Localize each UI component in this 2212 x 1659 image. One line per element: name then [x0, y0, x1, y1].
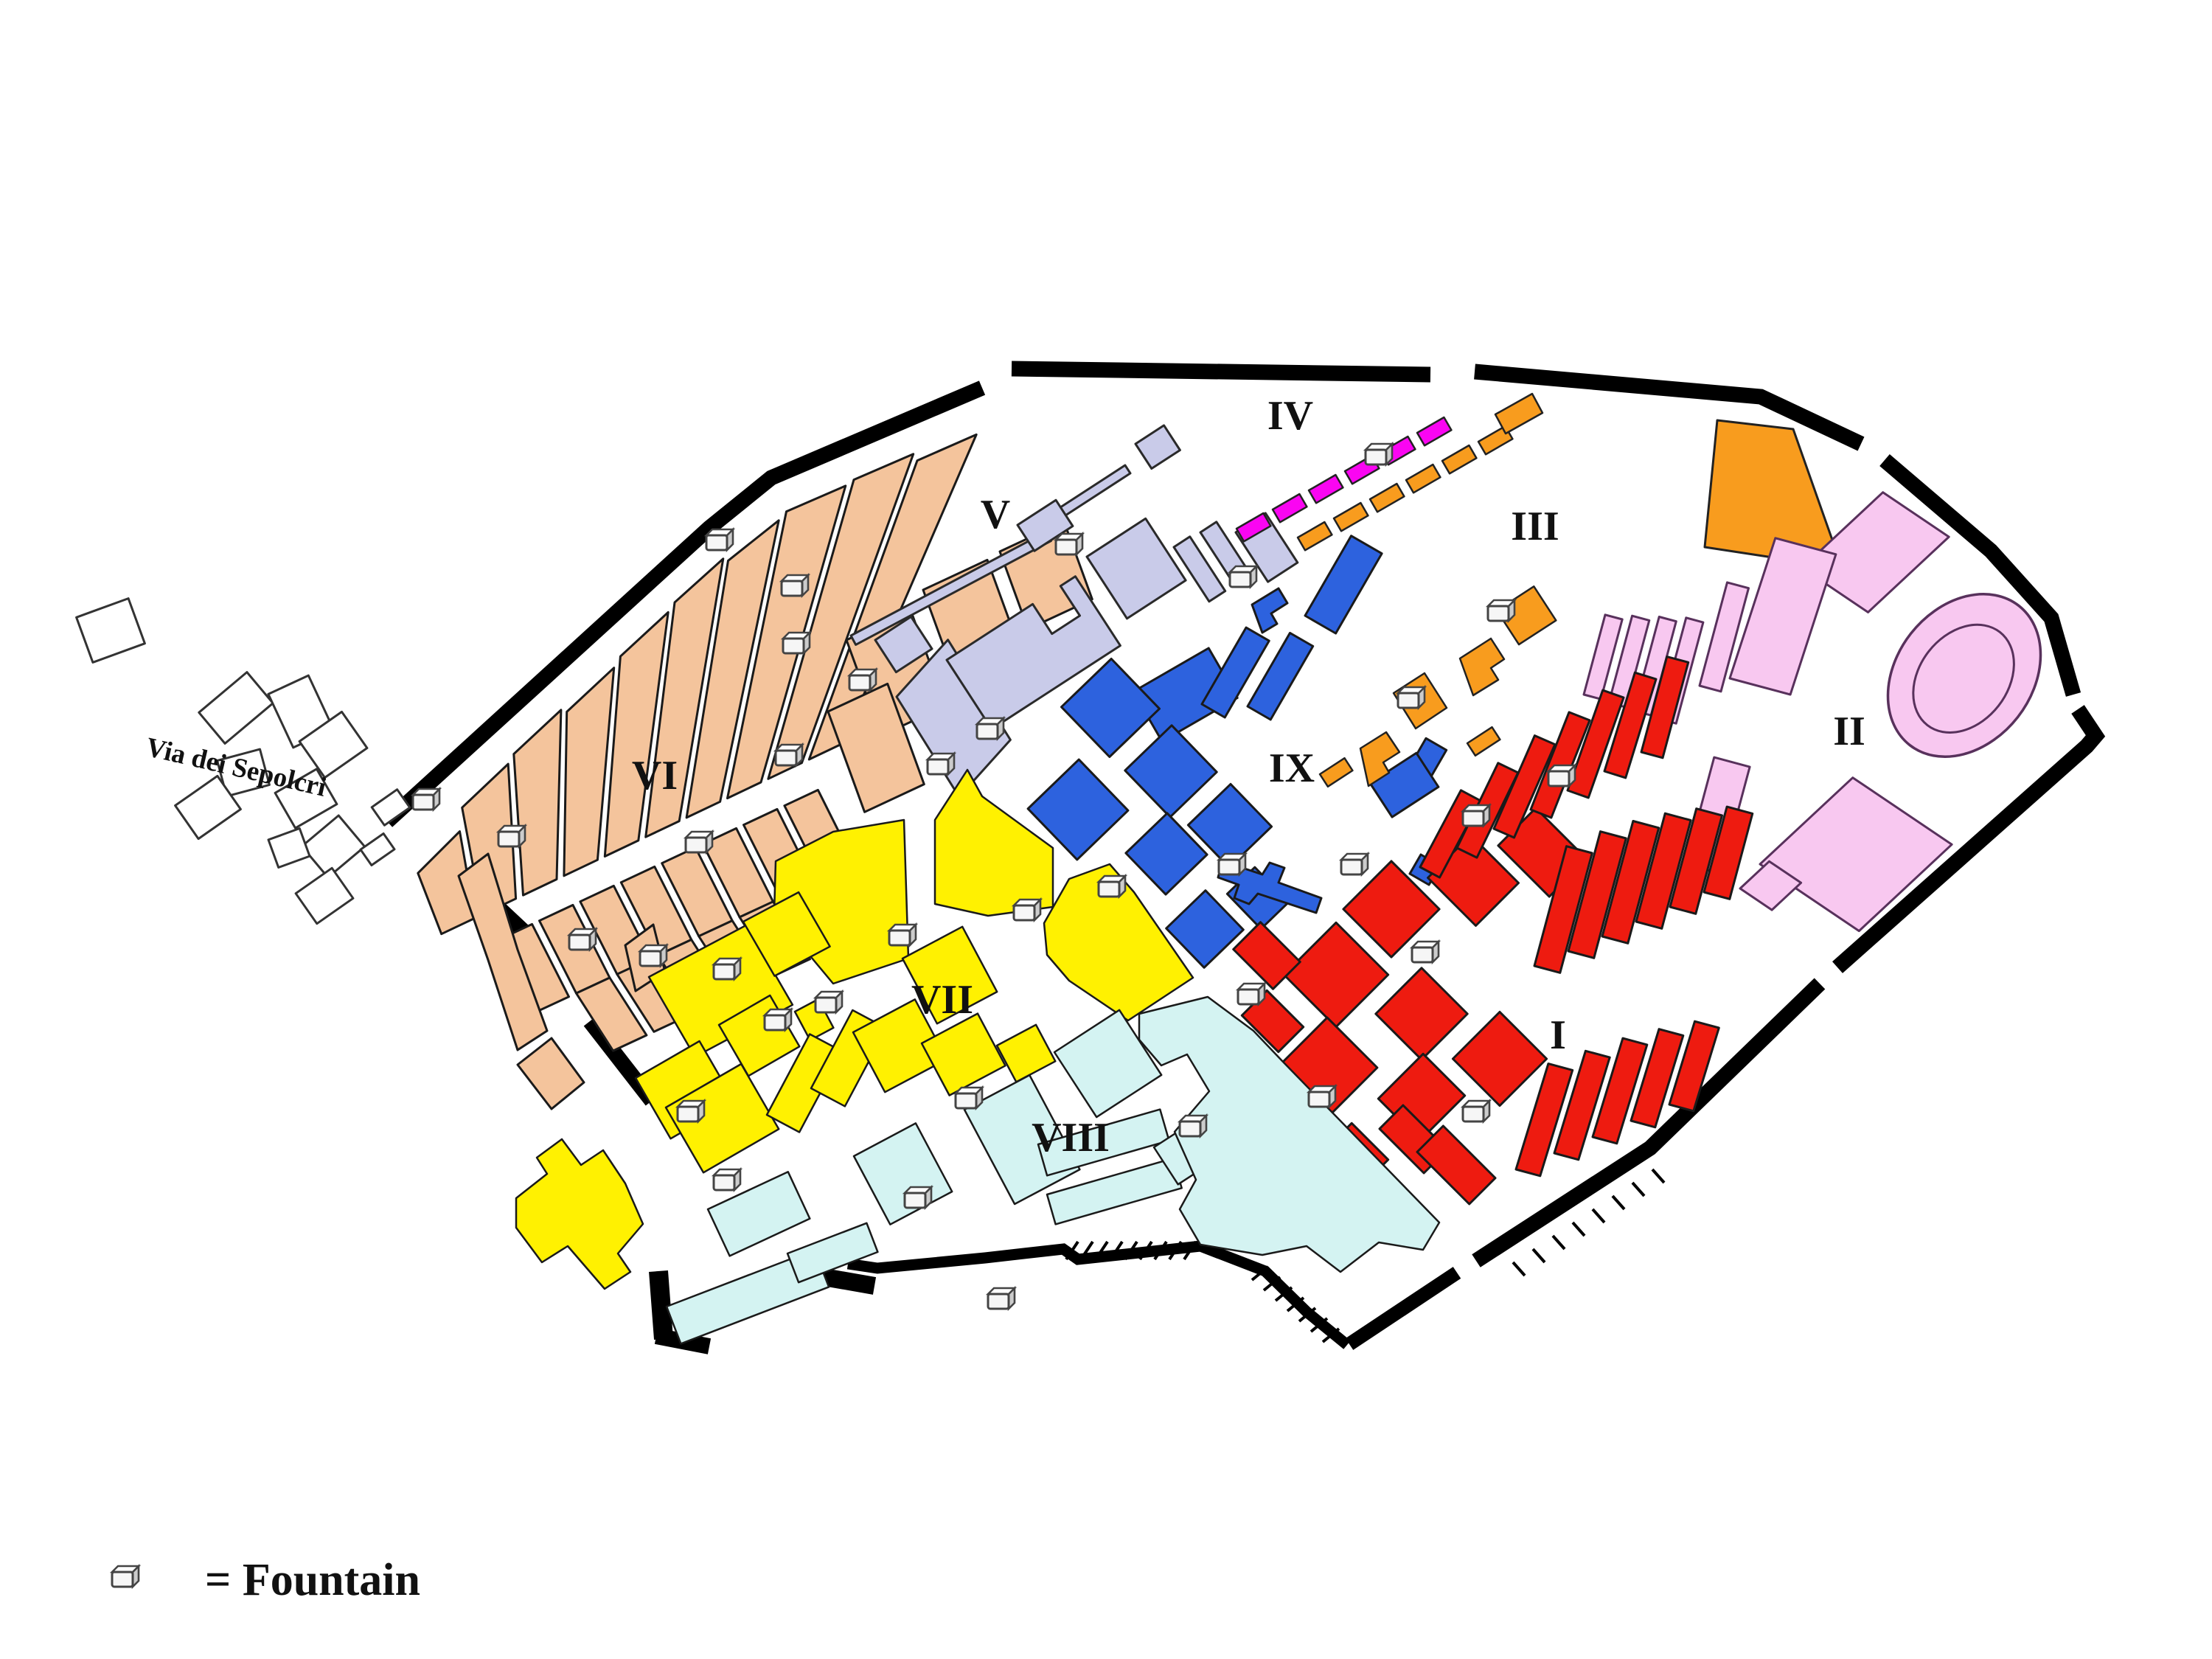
svg-text:V: V — [981, 492, 1010, 538]
svg-text:VIII: VIII — [1032, 1115, 1110, 1161]
svg-text:II: II — [1833, 709, 1865, 754]
svg-text:VI: VI — [632, 753, 678, 799]
svg-text:IV: IV — [1267, 393, 1313, 439]
svg-text:III: III — [1511, 504, 1559, 549]
svg-text:= Fountain: = Fountain — [205, 1555, 420, 1605]
svg-text:IX: IX — [1269, 745, 1315, 791]
svg-text:I: I — [1550, 1012, 1566, 1058]
svg-text:VII: VII — [911, 977, 973, 1023]
